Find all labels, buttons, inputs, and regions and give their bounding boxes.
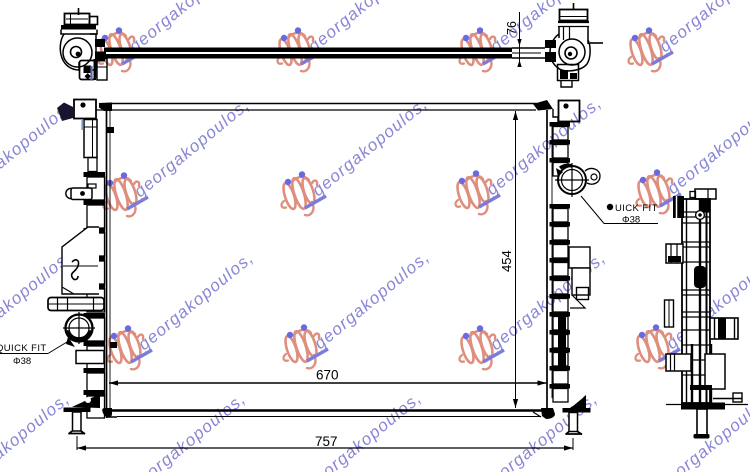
svg-text:757: 757 xyxy=(315,434,338,449)
svg-text:76: 76 xyxy=(505,21,519,35)
svg-text:QUICK FIT: QUICK FIT xyxy=(0,343,47,354)
svg-text:454: 454 xyxy=(499,250,514,272)
svg-text:670: 670 xyxy=(316,368,339,383)
svg-text:UICK FIT: UICK FIT xyxy=(615,203,658,214)
svg-text:Φ38: Φ38 xyxy=(13,356,31,367)
